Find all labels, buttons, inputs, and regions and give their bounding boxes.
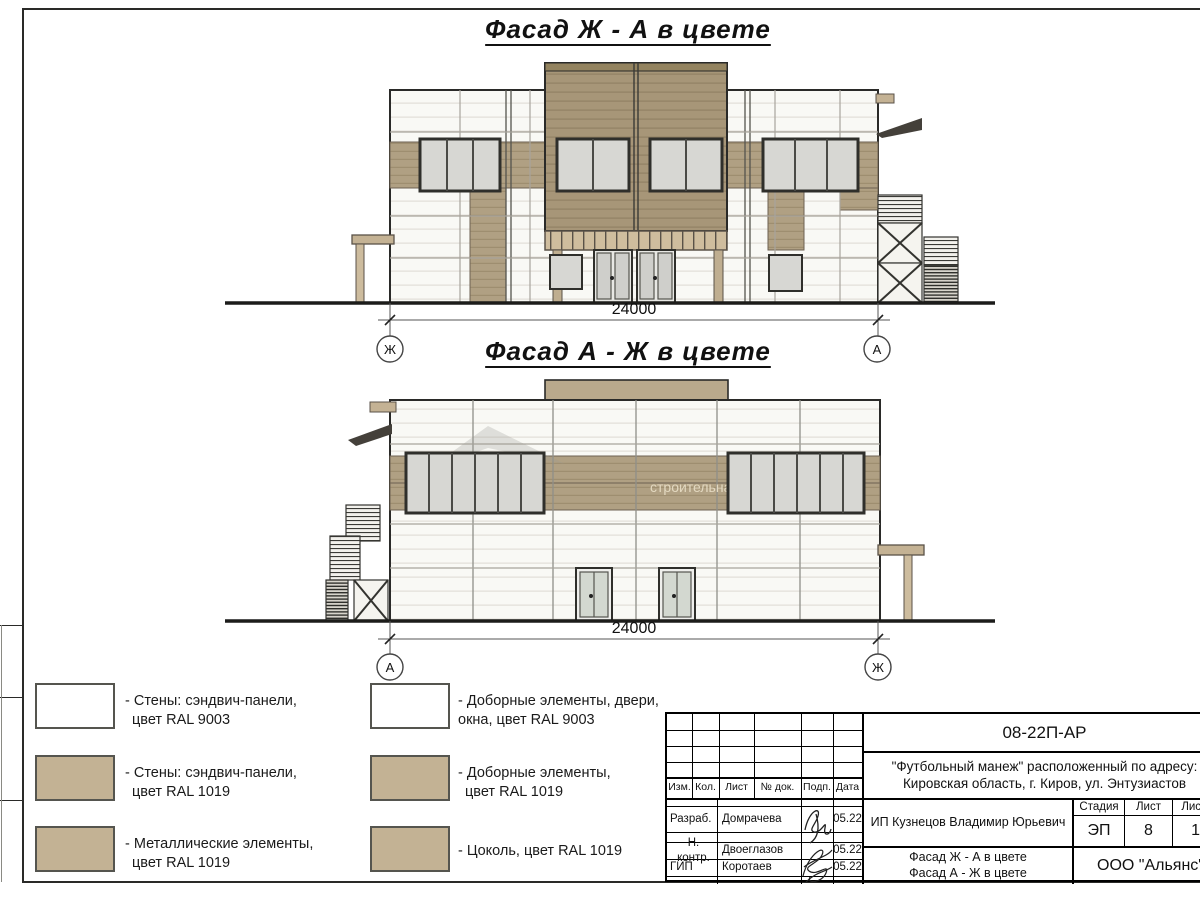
tb-col-izm: Изм. [667, 778, 692, 798]
tb-date-razrab: 05.22 [833, 806, 862, 832]
legend-line: - Стены: сэндвич-панели, [125, 693, 297, 709]
legend-line: окна, цвет RAL 9003 [458, 711, 659, 730]
stairs-roof-tab [370, 402, 396, 412]
legend-line: - Доборные элементы, двери, [458, 693, 659, 709]
legend-label: - Металлические элементы, цвет RAL 1019 [125, 835, 313, 873]
facade2-axis-right: Ж [865, 654, 891, 680]
margin-line-1 [0, 625, 22, 626]
tb-name-gip: Коротаев [719, 859, 801, 876]
margin-line-2 [0, 697, 22, 698]
tb-drawing-title-line1: Фасад Ж - А в цвете [909, 850, 1027, 866]
legend-line: цвет RAL 1019 [125, 783, 297, 802]
tb-stage-label: Стадия [1074, 800, 1124, 815]
legend-label: - Доборные элементы, двери, окна, цвет R… [458, 692, 659, 730]
stairs-railing-lower [924, 237, 958, 265]
tb-date-gip: 05.22 [833, 859, 862, 876]
tb-name-nkontr: Двоеглазов [719, 842, 801, 859]
legend-line: - Цоколь, цвет RAL 1019 [458, 843, 622, 859]
margin-edge [1, 625, 2, 882]
legend-swatch-plinth-1019 [370, 826, 450, 872]
window-3pane-left [420, 139, 500, 191]
legend-label: - Стены: сэндвич-панели, цвет RAL 1019 [125, 764, 297, 802]
legend-swatch-metal-1019 [35, 826, 115, 872]
facade1-title: Фасад Ж - А в цвете [348, 14, 908, 45]
stairs-railing-mid [330, 536, 360, 580]
legend-label: - Стены: сэндвич-панели, цвет RAL 9003 [125, 692, 297, 730]
tb-role-razrab: Разраб. [667, 806, 717, 832]
window-2pane-tower-right [650, 139, 722, 191]
tb-client: ИП Кузнецов Владимир Юрьевич [864, 800, 1072, 846]
legend-line: - Стены: сэндвич-панели, [125, 765, 297, 781]
stairs-roof-tab [876, 94, 894, 103]
entrance-canopy [545, 231, 727, 250]
legend-swatch-trim-1019 [370, 755, 450, 801]
tb-stage-value: ЭП [1074, 816, 1124, 846]
axis-letter: А [873, 342, 882, 357]
legend-line: - Доборные элементы, [458, 765, 611, 781]
drawing-sheet: Фасад Ж - А в цвете Фасад А - Ж в цвете [0, 0, 1200, 900]
axis-letter: Ж [872, 660, 884, 675]
small-window-right [769, 255, 802, 291]
tb-sheet-value: 8 [1125, 816, 1172, 846]
facade1-dimension-label: 24000 [612, 301, 657, 318]
tb-col-kol: Кол. [692, 778, 719, 798]
facade1-stairs [876, 94, 958, 303]
margin-line-3 [0, 800, 22, 801]
facade2-dimension-label: 24000 [612, 620, 657, 637]
signature-gip [799, 838, 835, 886]
facade1-axis-left: Ж [377, 336, 403, 362]
legend-label: - Доборные элементы, цвет RAL 1019 [458, 764, 611, 802]
tb-doc-number: 08-22П-АР [862, 714, 1200, 751]
facade1-title-text: Фасад Ж - А в цвете [485, 14, 771, 44]
tb-sheets-value: 17 [1173, 816, 1200, 846]
facade1-axis-right: А [864, 336, 890, 362]
stairs-treads [924, 265, 958, 303]
small-window-left [550, 255, 582, 289]
tb-sheet-label: Лист [1125, 800, 1172, 815]
facade1-left-canopy [352, 235, 394, 303]
tb-drawing-title: Фасад Ж - А в цвете Фасад А - Ж в цвете [864, 848, 1072, 884]
ribbon-window-left [406, 453, 544, 513]
tb-role-nkontr: Н. контр. [667, 842, 717, 859]
legend-label: - Цоколь, цвет RAL 1019 [458, 842, 622, 861]
window-2pane-tower-left [557, 139, 629, 191]
stairs-treads [326, 580, 348, 621]
legend-swatch-walls-1019 [35, 755, 115, 801]
legend-line: цвет RAL 9003 [125, 711, 297, 730]
tb-project-line2: Кировская область, г. Киров, ул. Энтузиа… [903, 776, 1186, 793]
title-block: Изм. Кол. Лист № док. Подп. Дата Разраб.… [665, 712, 1200, 882]
axis-letter: Ж [384, 342, 396, 357]
facade2-stairs [326, 402, 396, 621]
facade2-right-canopy [878, 545, 924, 621]
tb-col-data: Дата [833, 778, 862, 798]
roof-parapet [545, 380, 728, 400]
ribbon-window-right [728, 453, 864, 513]
tb-col-podp: Подп. [801, 778, 833, 798]
entrance-post-right [714, 250, 723, 303]
stairs-roof-wedge [348, 424, 392, 446]
frame-top [22, 8, 1200, 10]
legend-line: цвет RAL 1019 [125, 854, 313, 873]
tb-sheets-label: Листов [1173, 800, 1200, 815]
door-right [659, 568, 695, 621]
legend-line: - Металлические элементы, [125, 836, 313, 852]
stairs-railing-upper [878, 195, 922, 223]
tb-project: "Футбольный манеж" расположенный по адре… [862, 753, 1200, 798]
tb-company: ООО "Альянс" [1074, 848, 1200, 884]
stairs-roof-wedge [876, 118, 922, 138]
legend-swatch-walls-9003 [35, 683, 115, 729]
legend-line: цвет RAL 1019 [458, 783, 611, 802]
facade2-drawing: строительная компания [220, 368, 1000, 688]
tb-col-ndok: № док. [754, 778, 801, 798]
entrance-door-left [594, 250, 632, 303]
tb-role-gip: ГИП [667, 859, 717, 876]
tb-col-list: Лист [719, 778, 754, 798]
facade1-drawing: 24000 Ж А [220, 48, 1000, 368]
tb-drawing-title-line2: Фасад А - Ж в цвете [909, 866, 1027, 882]
window-3pane-right [763, 139, 858, 191]
tb-date-nkontr: 05.22 [833, 842, 862, 859]
entrance-door-right [637, 250, 675, 303]
axis-letter: А [386, 660, 395, 675]
tb-project-line1: "Футбольный манеж" расположенный по адре… [892, 759, 1198, 776]
legend-swatch-trim-9003 [370, 683, 450, 729]
tb-name-razrab: Домрачева [719, 806, 801, 832]
frame-left [22, 8, 24, 883]
facade2-axis-left: А [377, 654, 403, 680]
door-left [576, 568, 612, 621]
